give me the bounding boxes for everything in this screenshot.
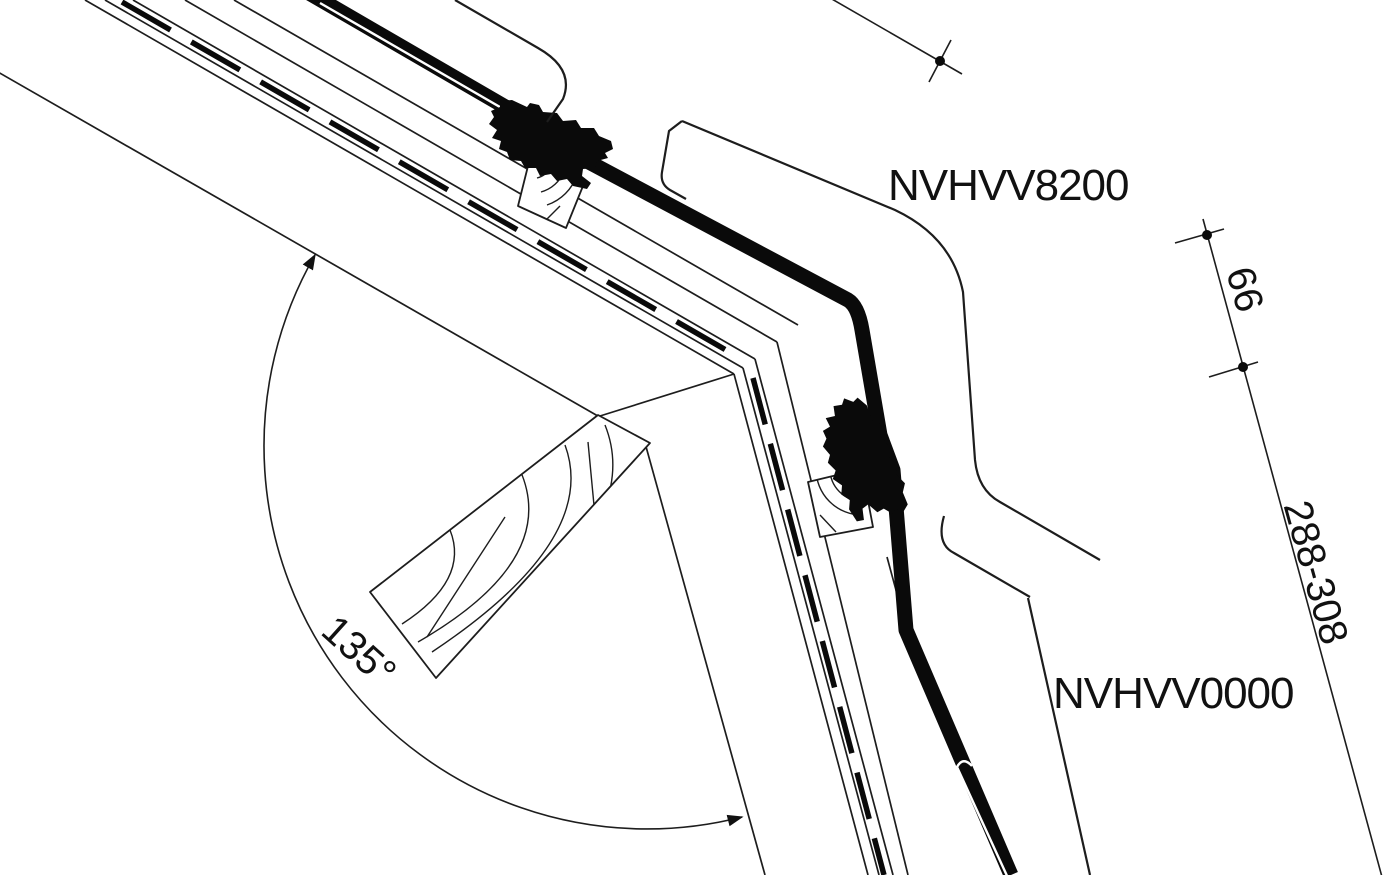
dimension-range-value: 288-308 xyxy=(1275,496,1357,649)
dimension-66: 66 xyxy=(1175,219,1385,875)
flashing-section-drawing: 135° 66 288-308 NVHVV8200 NVHVV0000 xyxy=(0,0,1400,875)
ridge-mullion xyxy=(370,415,650,678)
upper-window-frame-lines xyxy=(0,0,798,443)
flashing-band xyxy=(290,0,1011,875)
upper-gasket-dashes xyxy=(122,2,745,361)
dimension-66-value: 66 xyxy=(1217,262,1272,317)
ridge-bevel-cut-line xyxy=(600,374,734,416)
label-upper-flashing: NVHVV8200 xyxy=(888,161,1128,210)
technical-drawing-canvas: 135° 66 288-308 NVHVV8200 NVHVV0000 xyxy=(0,0,1400,875)
cover-notch xyxy=(662,121,686,199)
lower-cover-edge xyxy=(1028,598,1090,875)
dimension-288-308: 288-308 xyxy=(1275,496,1357,649)
label-lower-flashing: NVHVV0000 xyxy=(1053,669,1293,718)
lower-cover-tab xyxy=(942,516,1030,597)
dimension-upper-plane xyxy=(785,0,962,82)
angle-value: 135° xyxy=(313,607,404,695)
seam-clamp-lower xyxy=(788,389,939,540)
